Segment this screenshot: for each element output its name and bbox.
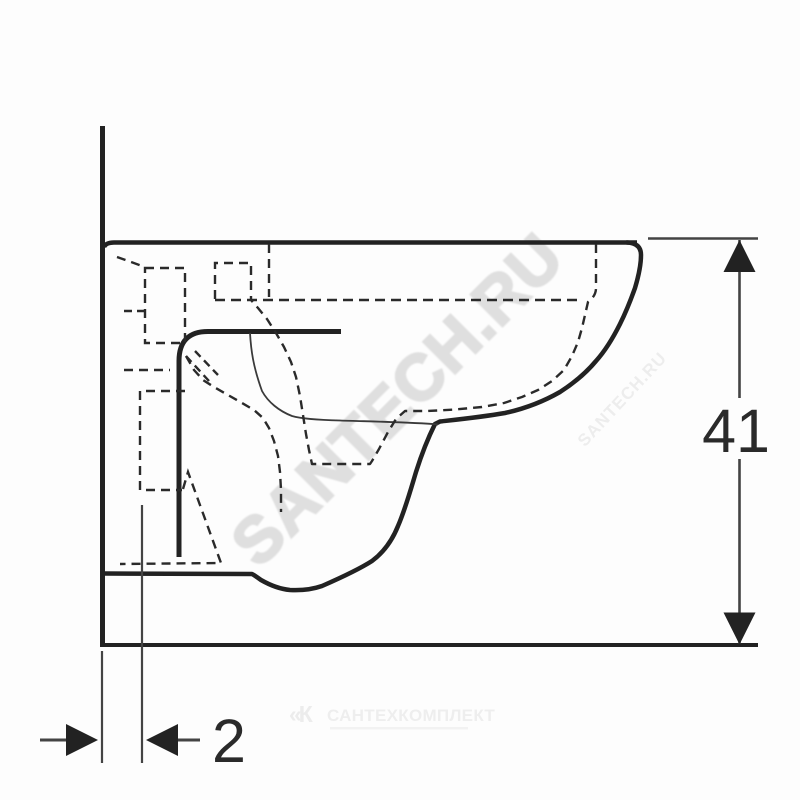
svg-text:2: 2 (212, 707, 246, 775)
svg-text:САНТЕХКОМПЛЕКТ: САНТЕХКОМПЛЕКТ (327, 706, 495, 725)
svg-text:41: 41 (702, 397, 770, 465)
